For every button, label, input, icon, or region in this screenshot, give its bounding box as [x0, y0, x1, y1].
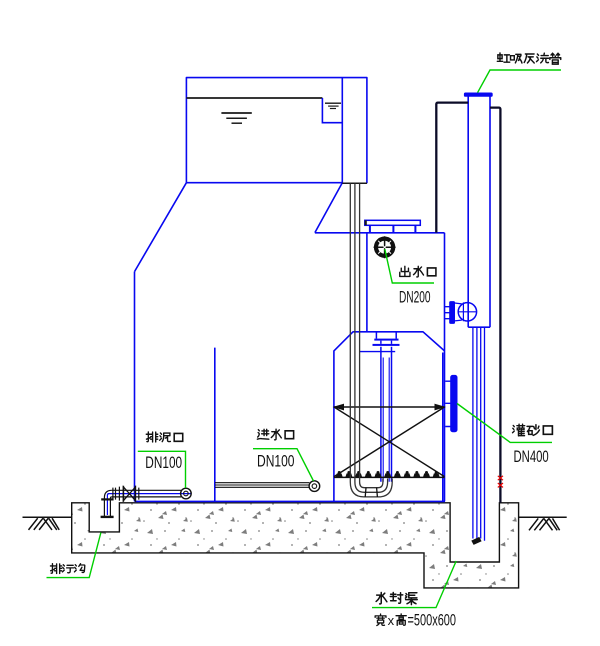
svg-text:=500x600: =500x600	[408, 611, 457, 630]
svg-text:DN100: DN100	[257, 453, 295, 471]
svg-text:DN400: DN400	[514, 447, 549, 466]
svg-text:DN200: DN200	[399, 288, 431, 307]
svg-text:x: x	[388, 613, 395, 628]
svg-text:DN100: DN100	[145, 454, 182, 472]
